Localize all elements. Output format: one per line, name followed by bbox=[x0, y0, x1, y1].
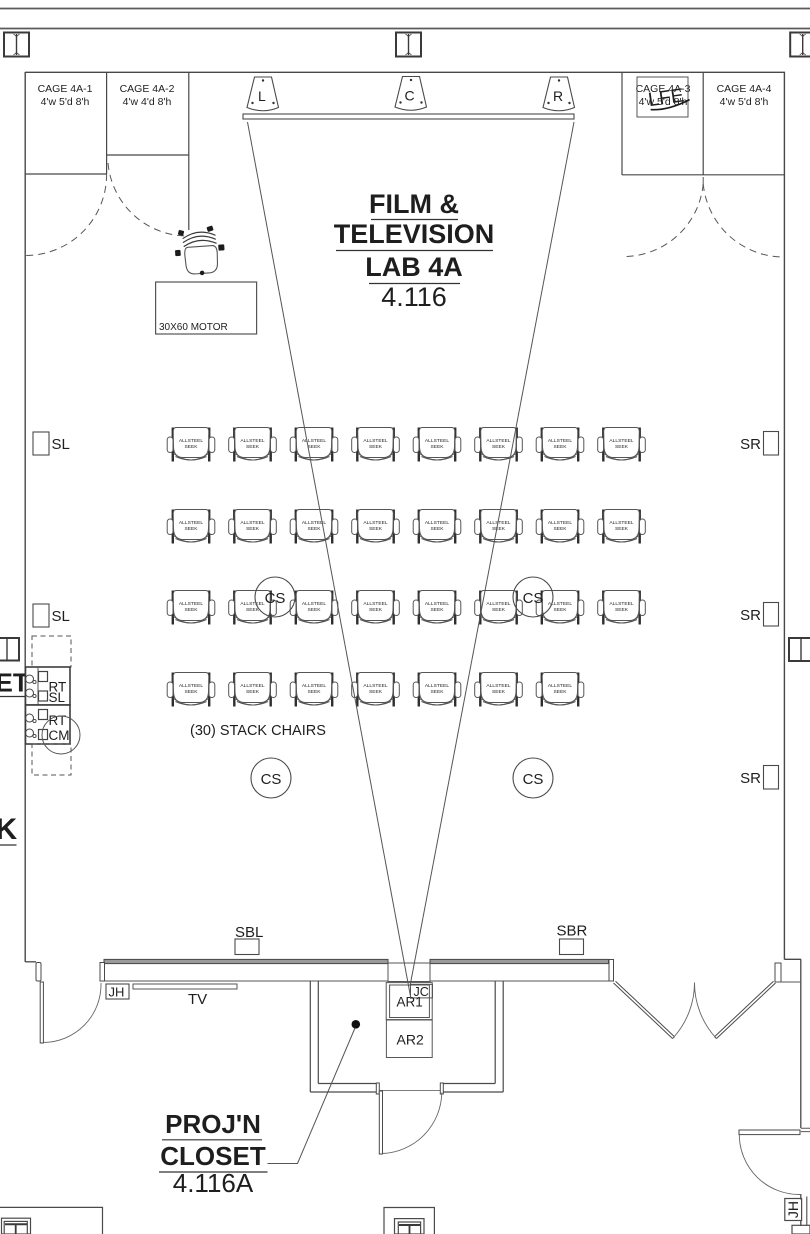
svg-text:SL: SL bbox=[52, 436, 70, 453]
svg-text:30X60 MOTOR: 30X60 MOTOR bbox=[159, 322, 228, 333]
svg-text:TELEVISION: TELEVISION bbox=[334, 219, 495, 249]
svg-text:CAGE 4A-4: CAGE 4A-4 bbox=[717, 83, 772, 95]
svg-text:CAGE 4A-1: CAGE 4A-1 bbox=[38, 83, 93, 95]
svg-text:CS: CS bbox=[523, 590, 544, 607]
svg-text:L: L bbox=[258, 88, 266, 104]
svg-text:(30) STACK CHAIRS: (30) STACK CHAIRS bbox=[190, 723, 326, 739]
svg-text:LAB 4A: LAB 4A bbox=[365, 252, 463, 282]
svg-text:FILM &: FILM & bbox=[369, 189, 459, 219]
svg-text:CM: CM bbox=[49, 728, 70, 743]
svg-text:CS: CS bbox=[265, 590, 286, 607]
svg-text:SR: SR bbox=[740, 436, 761, 453]
svg-text:4.116A: 4.116A bbox=[173, 1168, 254, 1198]
svg-text:C: C bbox=[405, 88, 415, 104]
svg-text:RT: RT bbox=[49, 713, 67, 728]
svg-text:R: R bbox=[553, 88, 563, 104]
svg-text:TV: TV bbox=[188, 991, 207, 1008]
svg-text:CAGE 4A-2: CAGE 4A-2 bbox=[120, 83, 175, 95]
svg-text:SBR: SBR bbox=[557, 923, 588, 940]
svg-text:4'w 5'd 8'h: 4'w 5'd 8'h bbox=[41, 96, 90, 108]
svg-text:K: K bbox=[0, 813, 18, 846]
svg-text:SR: SR bbox=[740, 607, 761, 624]
svg-text:CS: CS bbox=[523, 771, 544, 788]
svg-text:4'w 5'd 8'h: 4'w 5'd 8'h bbox=[720, 96, 769, 108]
svg-text:CLOSET: CLOSET bbox=[160, 1141, 266, 1171]
svg-text:SET: SET bbox=[0, 668, 29, 698]
svg-text:4'w 4'd 8'h: 4'w 4'd 8'h bbox=[123, 96, 172, 108]
svg-text:PROJ'N: PROJ'N bbox=[165, 1109, 261, 1139]
svg-text:CS: CS bbox=[261, 771, 282, 788]
svg-text:4.116: 4.116 bbox=[381, 282, 447, 312]
svg-text:SL: SL bbox=[49, 690, 66, 705]
svg-text:AR2: AR2 bbox=[397, 1032, 424, 1048]
svg-text:AR1: AR1 bbox=[397, 995, 423, 1010]
svg-text:SL: SL bbox=[52, 608, 70, 625]
svg-text:JH: JH bbox=[109, 985, 125, 1000]
svg-text:SR: SR bbox=[740, 770, 761, 787]
svg-text:JH: JH bbox=[785, 1201, 801, 1218]
